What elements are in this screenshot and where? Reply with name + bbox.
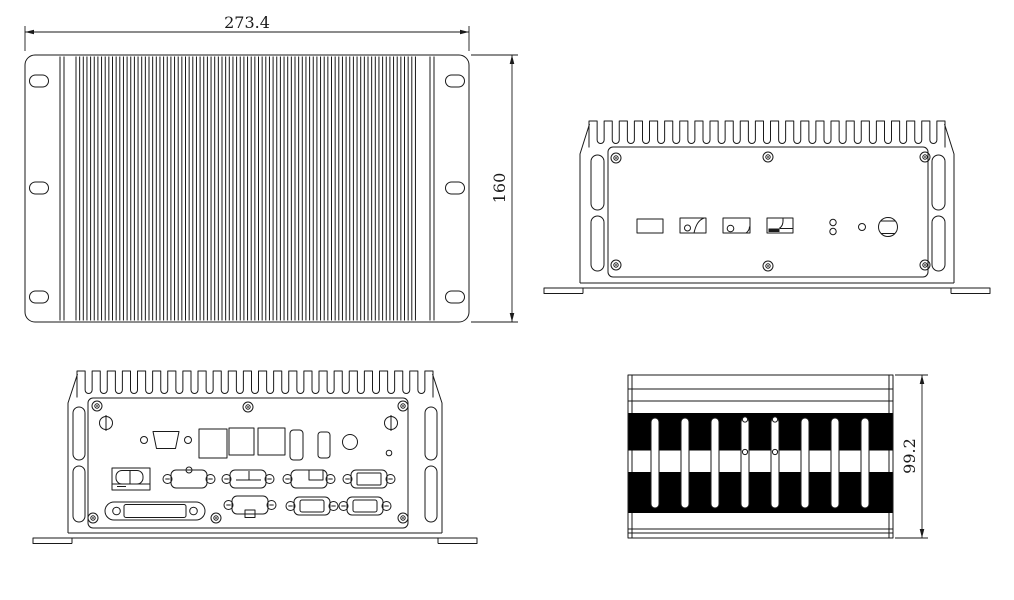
- antenna-hole: [385, 415, 398, 431]
- screw-icon: [763, 152, 773, 162]
- bracket-slot: [932, 216, 945, 271]
- vent-slot: [771, 418, 779, 508]
- mounting-slot: [30, 291, 49, 303]
- rear-feet: [544, 288, 990, 294]
- screw-icon: [88, 513, 98, 523]
- dim-arrow-up: [920, 375, 925, 384]
- mounting-slot: [446, 75, 465, 87]
- usb-port: [229, 428, 254, 455]
- screw-icon: [92, 401, 102, 411]
- mounting-slot: [30, 75, 49, 87]
- mic-hole: [386, 450, 392, 456]
- top-body-outline: [25, 55, 469, 322]
- rear-port-cutout: [680, 218, 706, 233]
- pin-hole: [742, 449, 747, 454]
- dimension-width: 273.4: [25, 13, 469, 51]
- com-port: [224, 496, 276, 518]
- screw-icon: [398, 513, 408, 523]
- pin-hole: [742, 417, 747, 422]
- vent-slot: [741, 418, 749, 508]
- pin-hole: [772, 417, 777, 422]
- dvi-port: [105, 502, 205, 520]
- rear-heatsink-fins: [589, 121, 945, 148]
- dim-height-label: 160: [490, 173, 509, 204]
- dimension-height: 160: [471, 55, 518, 322]
- blank-plate: [637, 219, 663, 233]
- screw-icon: [398, 401, 408, 411]
- mounting-slot: [30, 182, 49, 194]
- front-io-panel: [100, 415, 398, 520]
- rear-io-panel: [637, 218, 898, 237]
- screw-icon: [211, 513, 221, 523]
- usb-port: [258, 428, 285, 455]
- dim-side-height-label: 99.2: [900, 438, 919, 474]
- dimension-side-height: 99.2: [895, 375, 928, 538]
- mounting-slot: [446, 182, 465, 194]
- hdmi-port: [318, 432, 330, 458]
- dim-arrow-left: [25, 30, 34, 35]
- front-feet: [33, 538, 477, 544]
- vent-slot: [651, 418, 659, 508]
- rear-view: [544, 121, 990, 294]
- dim-width-label: 273.4: [224, 13, 270, 32]
- bracket-slot: [73, 407, 85, 460]
- power-terminal: [112, 468, 150, 490]
- vent-slot: [831, 418, 839, 508]
- front-face-plate: [88, 398, 408, 528]
- dp-port: [290, 430, 303, 460]
- side-fin-band: [629, 472, 893, 513]
- top-fins: [60, 57, 434, 321]
- com-port: [283, 470, 335, 488]
- rear-face-plate: [608, 147, 928, 277]
- dim-arrow-right: [460, 30, 469, 35]
- front-heatsink-fins: [77, 371, 433, 398]
- top-view: 273.4 160: [25, 13, 518, 322]
- bracket-slot: [425, 407, 437, 460]
- screw-icon: [611, 260, 621, 270]
- dim-arrow-down: [920, 529, 925, 538]
- bracket-slot: [73, 466, 85, 522]
- vent-slot: [711, 418, 719, 508]
- drawing-canvas: 273.4 160: [0, 0, 1014, 600]
- lan-port: [199, 429, 227, 458]
- com-port: [222, 470, 274, 488]
- side-fin-band: [629, 413, 893, 451]
- dim-arrow-down: [510, 313, 515, 322]
- vent-slot: [681, 418, 689, 508]
- com-port: [339, 497, 391, 515]
- com-port: [163, 467, 215, 488]
- mounting-slot: [446, 291, 465, 303]
- vent-slot: [861, 418, 869, 508]
- dim-arrow-up: [510, 55, 515, 64]
- vent-slot: [801, 418, 809, 508]
- bracket-slot: [591, 216, 604, 271]
- front-view: [33, 371, 477, 544]
- pin-hole: [772, 449, 777, 454]
- bracket-slot: [932, 155, 945, 210]
- com-port: [286, 497, 338, 515]
- power-inlet: [879, 218, 898, 237]
- rear-chassis-outline: [580, 124, 954, 283]
- bracket-slot: [425, 466, 437, 522]
- led-indicator: [830, 219, 836, 225]
- rear-port-cutout: [723, 218, 750, 233]
- vga-port: [141, 432, 192, 449]
- screw-icon: [243, 402, 253, 412]
- reset-hole: [859, 224, 866, 231]
- com-port: [343, 470, 395, 488]
- antenna-hole: [100, 415, 113, 431]
- screw-icon: [763, 261, 773, 271]
- led-indicator: [830, 228, 836, 234]
- side-body-outline: [628, 375, 893, 538]
- screw-icon: [611, 153, 621, 163]
- technical-drawing: 273.4 160: [0, 0, 1014, 600]
- side-view: 99.2: [628, 375, 928, 538]
- audio-jack: [343, 435, 358, 450]
- rear-port-cutout: [767, 218, 793, 233]
- bracket-slot: [591, 155, 604, 210]
